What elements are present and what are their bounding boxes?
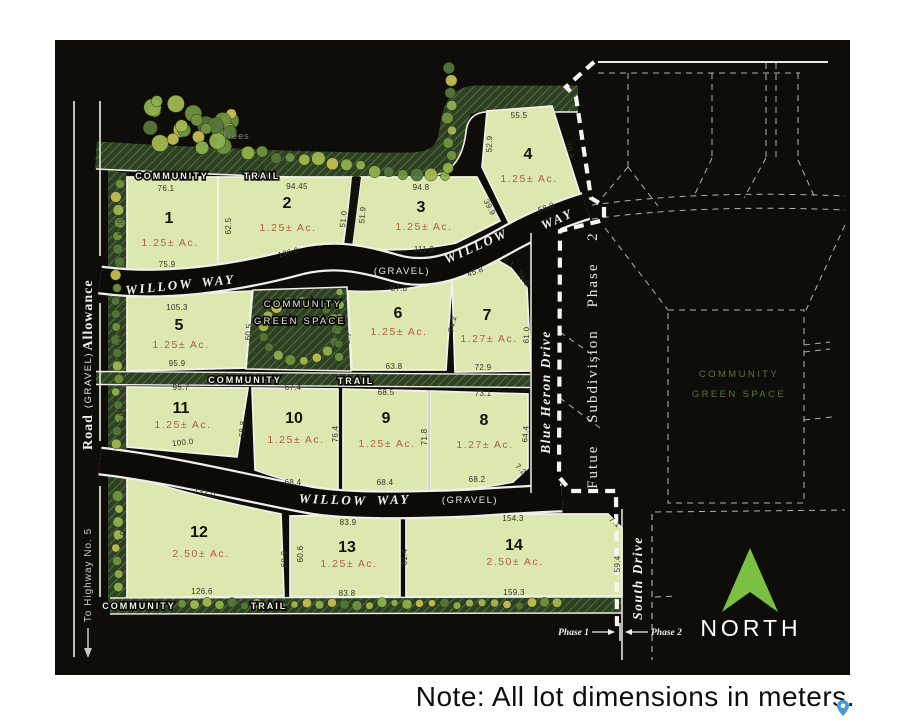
top-trail-community: COMMUNITY <box>135 171 209 181</box>
mid-trail-band <box>96 378 530 381</box>
plat-map-canvas: Road Allowance (GRAVEL) To Highway No. 5… <box>55 40 850 675</box>
lot-9-area: 1.25± Ac. <box>358 438 415 450</box>
lot-13-area: 1.25± Ac. <box>320 558 377 570</box>
north-label: NORTH <box>700 615 801 641</box>
lot-3-dim-top: 94.8 <box>413 183 430 192</box>
lot-12-number: 12 <box>190 524 208 541</box>
mid-trail-trail: TRAIL <box>338 376 375 386</box>
willow-upper-surface: (GRAVEL) <box>374 266 430 277</box>
lot-1-dim-left: 67.0 <box>116 218 125 235</box>
lot-12-dim-left: 97.0 <box>117 530 127 548</box>
east-green-space-line2: GREEN SPACE <box>692 389 786 400</box>
lot-2-number: 2 <box>283 195 292 212</box>
lot-10-area: 1.25± Ac. <box>267 434 324 446</box>
south-drive-label: South Drive <box>630 536 645 620</box>
lot-7-number: 7 <box>483 307 492 324</box>
lot-14-dim-top: 154.3 <box>502 514 524 523</box>
lot-14-area: 2.50± Ac. <box>486 556 543 568</box>
lot-14-dim-right: 59.4 <box>613 555 622 572</box>
lot-10-number: 10 <box>285 410 303 427</box>
road-allowance-label-road: Road <box>81 414 96 450</box>
lot-13-dim-top: 83.9 <box>340 518 357 527</box>
lot-1-number: 1 <box>165 210 174 227</box>
lot-8-area: 1.27± Ac. <box>456 439 513 451</box>
lot-3-dim-bottom: 111.9 <box>414 245 435 254</box>
lot-4-dim-top: 55.5 <box>511 111 528 120</box>
lot-8-dim-top: 73.1 <box>475 389 492 398</box>
lot-8-number: 8 <box>480 412 489 429</box>
dimensions-note: Note: All lot dimensions in meters. <box>416 681 855 713</box>
willow-lower-name2: WAY <box>377 491 412 507</box>
lot-14-dim-bottom: 159.3 <box>503 588 525 597</box>
central-green-space-line2: GREEN SPACE <box>254 316 346 327</box>
lot-1-dim-bottom: 75.9 <box>159 260 176 269</box>
lot-11-dim-right: 68.8 <box>237 420 247 438</box>
lot-12-area: 2.50± Ac. <box>172 548 229 560</box>
lot-12-dim-bottom: 126.6 <box>191 587 213 596</box>
lot-10-dim-right: 76.4 <box>331 425 340 442</box>
lot-2-area: 1.25± Ac. <box>259 222 316 234</box>
top-trail-trail: TRAIL <box>244 171 281 181</box>
lot-4-number: 4 <box>524 146 533 163</box>
lot-5-number: 5 <box>175 317 184 334</box>
phase-2-label: Phase 2 <box>651 628 682 638</box>
map-pin-icon <box>836 699 850 717</box>
lot-9-number: 9 <box>382 410 391 427</box>
blue-heron-drive-label: Blue Heron Drive <box>538 330 553 455</box>
lot-10-dim-bottom: 68.4 <box>285 478 302 487</box>
bottom-trail-trail: TRAIL <box>251 601 288 611</box>
lot-3-dim-left: 51.9 <box>357 206 367 224</box>
lot-2-dim-left: 62.5 <box>224 217 233 234</box>
lot-6-dim-top: 87.8 <box>391 284 408 293</box>
lot-13-dim-right: 61.4 <box>400 548 409 565</box>
lot-11-area: 1.25± Ac. <box>154 419 211 431</box>
plat-page: Road Allowance (GRAVEL) To Highway No. 5… <box>0 0 900 720</box>
lot-13-number: 13 <box>338 539 356 556</box>
lot-14-number: 14 <box>505 537 523 554</box>
lot-1-area: 1.25± Ac. <box>141 237 198 249</box>
lot-7-dim-bottom: 72.9 <box>475 363 492 372</box>
lot-13-dim-bottom: 83.8 <box>339 589 356 598</box>
lot-11-number: 11 <box>173 400 190 417</box>
future-subdivision-label: Futue Subdivision Phase 2 <box>585 231 601 489</box>
plat-map-svg: Road Allowance (GRAVEL) To Highway No. 5… <box>55 40 850 675</box>
lot-2-dim-top: 94.45 <box>286 182 308 191</box>
lot-11-dim-top: 95.7 <box>173 383 190 392</box>
lot-4-dim-left: 52.9 <box>485 135 495 152</box>
lot-5-dim-right: 60.5 <box>243 323 253 341</box>
lot-3-area: 1.25± Ac. <box>395 221 452 233</box>
phase-1-label: Phase 1 <box>558 628 589 638</box>
lot-12-dim-right: 60.9 <box>280 550 289 567</box>
lot-5-dim-top: 105.3 <box>166 303 188 312</box>
lot-8-dim-right: 64.4 <box>520 425 530 443</box>
lot-11-dim-left: 46.0 <box>118 411 127 428</box>
willow-lower-surface: (GRAVEL) <box>442 495 498 506</box>
lot-5-parcel <box>127 291 252 371</box>
lot-6-dim-bottom: 63.8 <box>386 362 403 371</box>
east-green-space-line1: COMMUNITY <box>699 369 779 380</box>
to-highway-label: To Highway No. 5 <box>83 528 94 622</box>
lot-7-dim-right: 61.0 <box>522 326 532 343</box>
lot-1-dim-top: 76.1 <box>158 184 175 193</box>
lot-9-dim-top: 68.5 <box>378 388 395 397</box>
lot-6-number: 6 <box>394 305 403 322</box>
lot-10-dim-top: 67.4 <box>285 383 302 392</box>
lot-13-dim-left: 60.6 <box>296 545 305 562</box>
lot-9-dim-bottom: 68.4 <box>377 478 394 487</box>
lot-9-dim-right: 71.8 <box>420 428 429 445</box>
lot-6-area: 1.25± Ac. <box>370 326 427 338</box>
lot-7-area: 1.27± Ac. <box>460 333 517 345</box>
central-green-space-line1: COMMUNITY <box>264 299 342 310</box>
lot-5-dim-left: 48.0 <box>117 328 126 345</box>
willow-lower-name1: WILLOW <box>299 491 368 508</box>
road-allowance-surface: (GRAVEL) <box>83 352 94 408</box>
road-allowance-label-allowance: Allowance <box>81 279 96 350</box>
trees-label: Trees <box>222 131 250 141</box>
lot-3-number: 3 <box>417 199 426 216</box>
lot-5-area: 1.25± Ac. <box>152 339 209 351</box>
lot-4-area: 1.25± Ac. <box>500 173 557 185</box>
mid-trail-community: COMMUNITY <box>208 375 282 385</box>
lot-5-dim-bottom: 95.9 <box>169 359 186 368</box>
lot-8-dim-bottom: 68.2 <box>469 475 486 484</box>
bottom-trail-community: COMMUNITY <box>102 601 176 611</box>
